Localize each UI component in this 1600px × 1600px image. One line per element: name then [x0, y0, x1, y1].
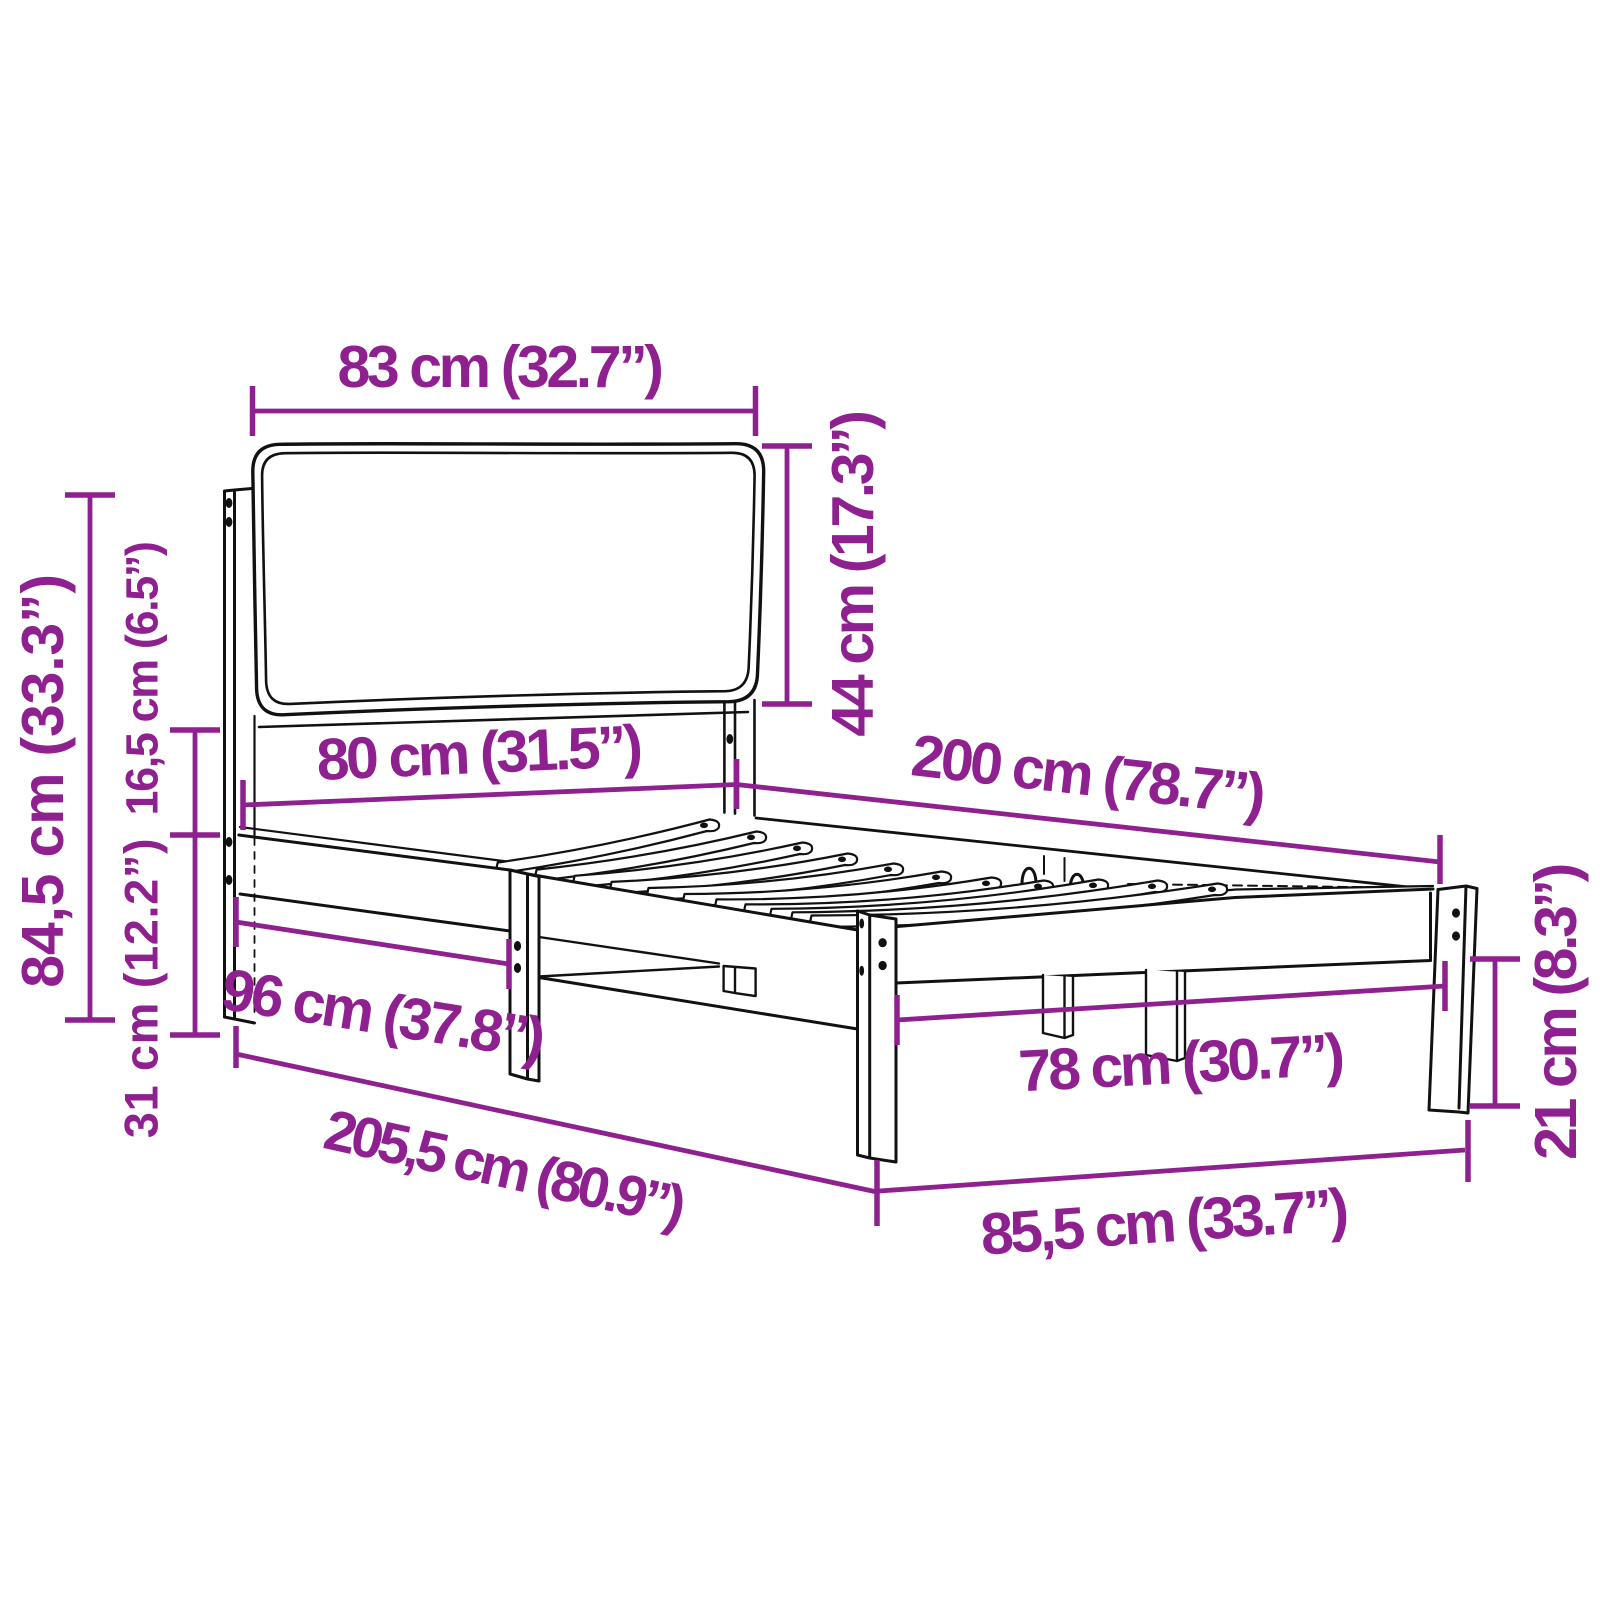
svg-text:21 cm (8.3”): 21 cm (8.3”) [1523, 865, 1589, 1159]
svg-text:83 cm (32.7”): 83 cm (32.7”) [337, 334, 661, 400]
svg-text:84,5 cm (33.3”): 84,5 cm (33.3”) [10, 574, 76, 988]
svg-text:44 cm (17.3”): 44 cm (17.3”) [820, 413, 886, 737]
svg-text:200 cm (78.7”): 200 cm (78.7”) [908, 722, 1266, 828]
svg-text:85,5 cm (33.7”): 85,5 cm (33.7”) [978, 1176, 1348, 1267]
svg-text:16,5 cm (6.5”): 16,5 cm (6.5”) [117, 542, 168, 815]
svg-text:31 cm (12.2”): 31 cm (12.2”) [115, 838, 168, 1138]
svg-text:80 cm (31.5”): 80 cm (31.5”) [315, 713, 641, 793]
svg-text:96 cm (37.8”): 96 cm (37.8”) [217, 956, 547, 1072]
svg-text:205,5 cm (80.9”): 205,5 cm (80.9”) [319, 1098, 690, 1239]
